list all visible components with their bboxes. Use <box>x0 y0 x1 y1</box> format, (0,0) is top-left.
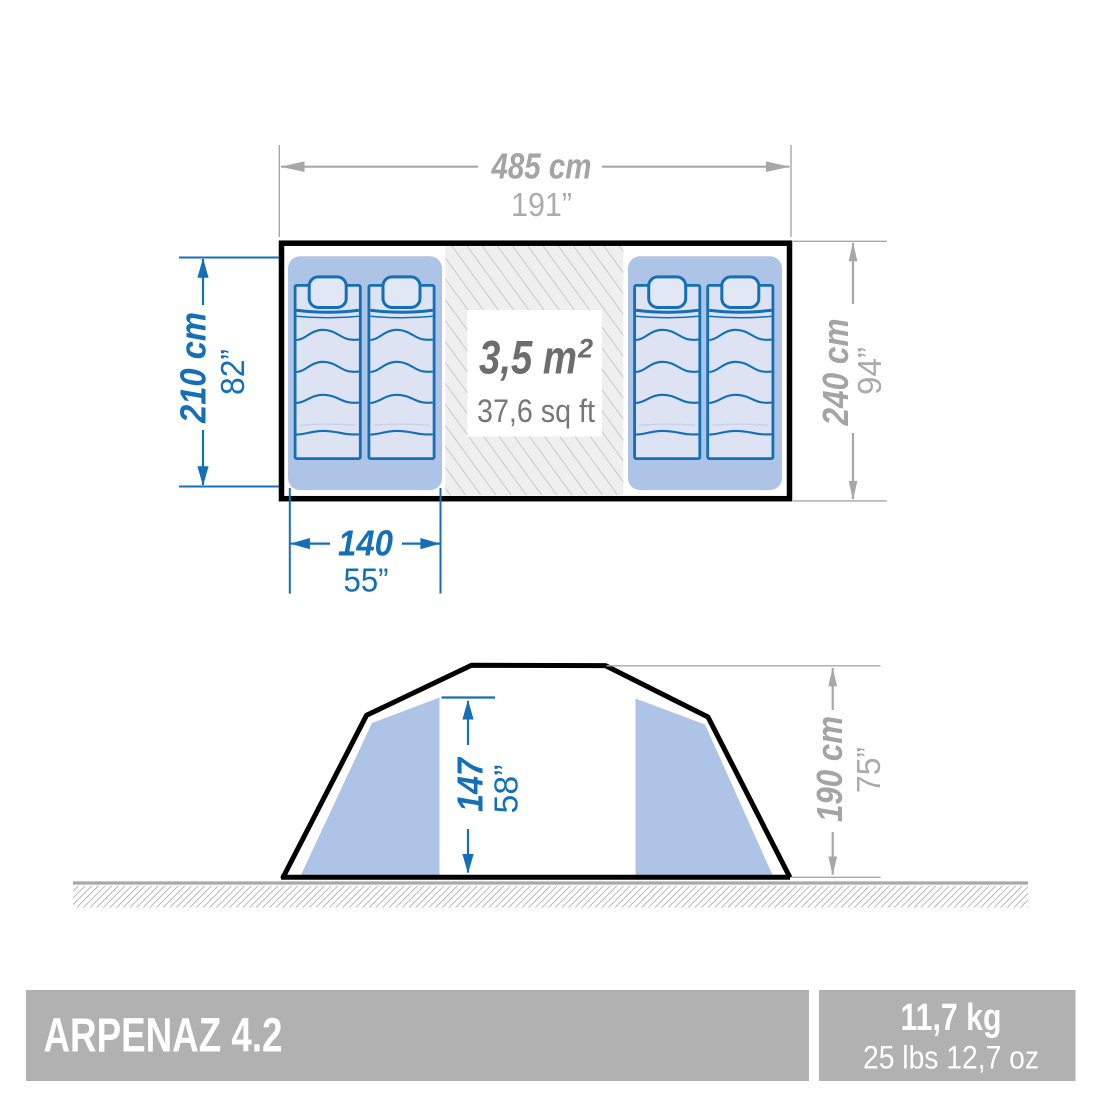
svg-text:485 cm: 485 cm <box>491 146 592 187</box>
svg-text:58”: 58” <box>488 765 525 814</box>
svg-text:25 lbs 12,7 oz: 25 lbs 12,7 oz <box>863 1040 1039 1076</box>
svg-text:190 cm: 190 cm <box>809 716 850 822</box>
svg-text:94”: 94” <box>851 347 888 395</box>
svg-text:75”: 75” <box>850 747 887 793</box>
svg-text:2: 2 <box>577 334 593 364</box>
svg-text:210 cm: 210 cm <box>173 312 214 424</box>
svg-text:ARPENAZ 4.2: ARPENAZ 4.2 <box>44 1009 283 1063</box>
svg-text:37,6 sq ft: 37,6 sq ft <box>477 393 595 429</box>
svg-text:11,7 kg: 11,7 kg <box>901 997 1002 1039</box>
svg-text:140: 140 <box>338 523 393 564</box>
svg-text:55”: 55” <box>344 562 389 599</box>
svg-text:191”: 191” <box>511 186 572 223</box>
svg-text:82”: 82” <box>214 349 251 395</box>
svg-text:147: 147 <box>450 756 491 812</box>
svg-text:3,5 m: 3,5 m <box>479 331 577 384</box>
svg-text:240 cm: 240 cm <box>815 319 856 427</box>
